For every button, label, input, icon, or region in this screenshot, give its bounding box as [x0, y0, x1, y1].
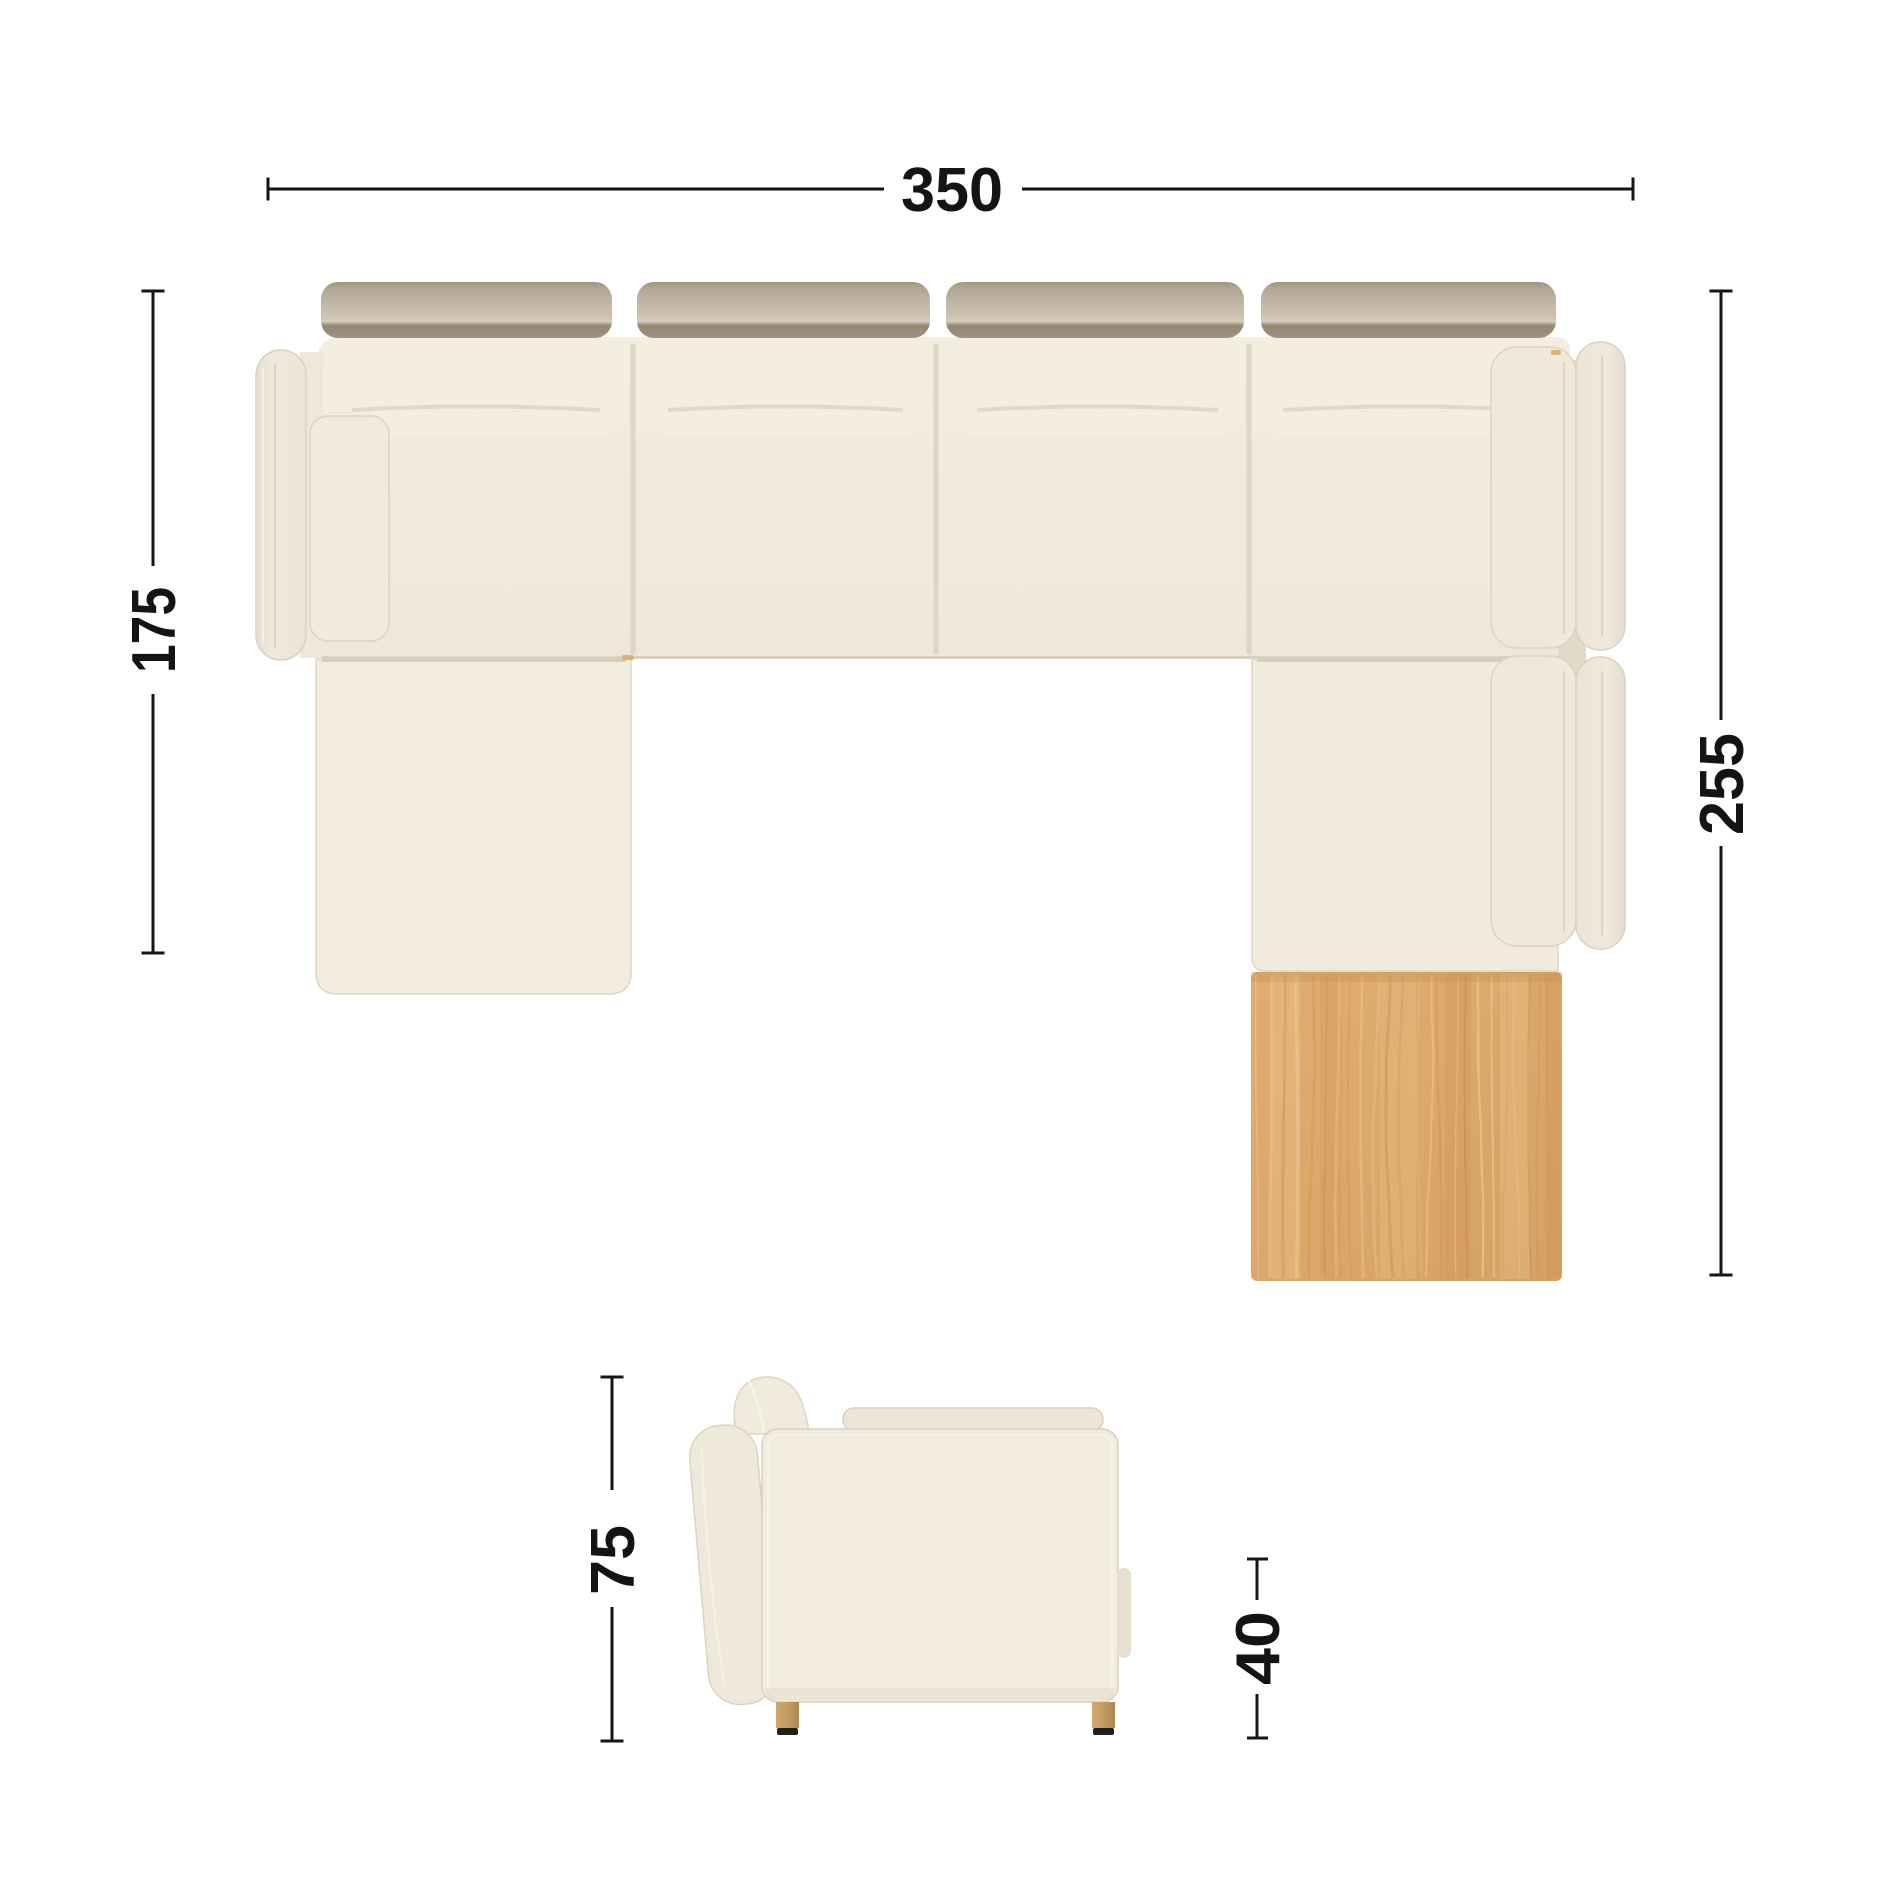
svg-text:255: 255 [1688, 733, 1757, 835]
svg-text:40: 40 [1224, 1611, 1293, 1685]
svg-text:350: 350 [901, 156, 1003, 225]
svg-text:75: 75 [579, 1525, 648, 1595]
svg-text:175: 175 [120, 587, 189, 673]
